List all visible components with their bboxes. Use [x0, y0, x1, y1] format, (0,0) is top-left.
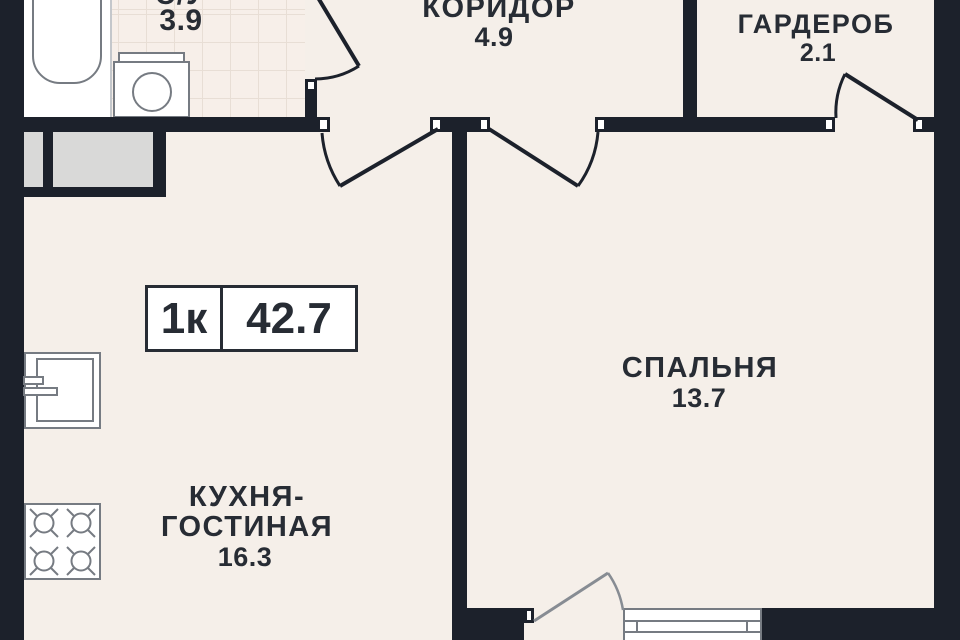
door-jamb: [478, 117, 490, 132]
door-jamb: [430, 117, 443, 132]
room-label-kitchen-line2: ГОСТИНАЯ: [161, 512, 333, 542]
wall-bedroom-bottom-left: [452, 608, 524, 640]
bathtub-icon: [24, 0, 112, 117]
room-label-kitchen-line1: КУХНЯ-: [189, 482, 305, 512]
room-label-corridor: КОРИДОР: [422, 0, 576, 23]
badge-room-count: 1к: [148, 288, 220, 349]
wall-segment: [925, 117, 934, 132]
stove-icon: [24, 503, 101, 580]
room-area-bedroom: 13.7: [672, 384, 727, 412]
door-jamb: [317, 117, 330, 132]
wall-kitchen-bedroom: [452, 132, 467, 608]
door-jamb: [823, 117, 835, 132]
room-label-wardrobe: ГАРДЕРОБ: [738, 10, 895, 38]
door-jamb: [305, 79, 317, 92]
badge-total-area: 42.7: [223, 288, 355, 349]
floor-plan: С/У 3.9 КОРИДОР 4.9 ГАРДЕРОБ 2.1 СПАЛЬНЯ…: [0, 0, 960, 640]
apartment-badge: 1к 42.7: [145, 285, 358, 352]
wall-segment: [607, 117, 823, 132]
wall-bedroom-bottom-right: [762, 608, 934, 640]
door-jamb: [524, 608, 534, 623]
wall-corridor-wardrobe: [683, 0, 697, 117]
wall-bathroom-bottom: [24, 117, 317, 132]
door-jamb: [595, 117, 607, 132]
exterior-wall-right: [934, 0, 960, 640]
room-area-corridor: 4.9: [474, 23, 513, 51]
exterior-wall-left: [0, 0, 24, 640]
wall-bathroom-corridor-stub: [305, 91, 317, 118]
room-label-bedroom: СПАЛЬНЯ: [622, 353, 779, 383]
room-area-bathroom: 3.9: [159, 5, 202, 37]
door-jamb: [913, 117, 925, 132]
room-area-kitchen: 16.3: [218, 543, 273, 571]
wall-segment: [443, 117, 478, 132]
room-area-wardrobe: 2.1: [800, 40, 836, 66]
